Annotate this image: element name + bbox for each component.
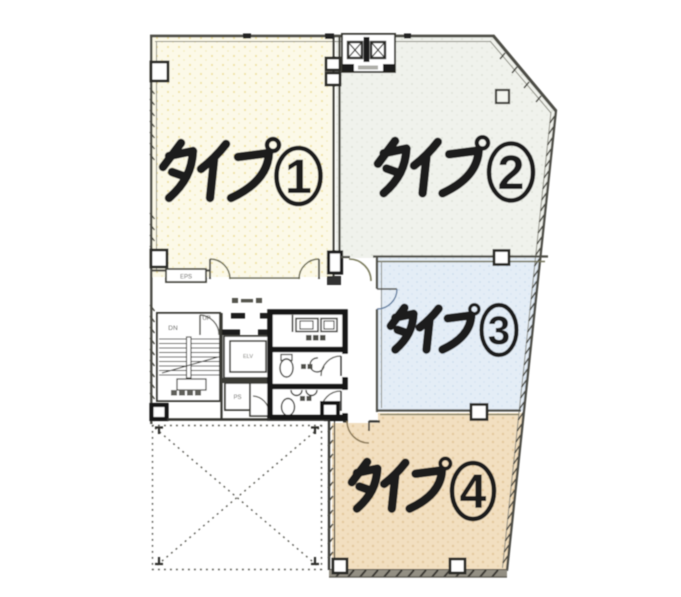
svg-text:ELV: ELV [243,354,253,360]
svg-text:PS: PS [233,395,241,401]
svg-text:4: 4 [460,466,487,519]
svg-text:2: 2 [498,147,525,200]
svg-text:EPS: EPS [180,275,192,281]
svg-text:1: 1 [285,151,312,204]
svg-text:UP: UP [202,316,210,322]
svg-text:3: 3 [488,309,510,353]
svg-text:DN: DN [168,325,178,332]
